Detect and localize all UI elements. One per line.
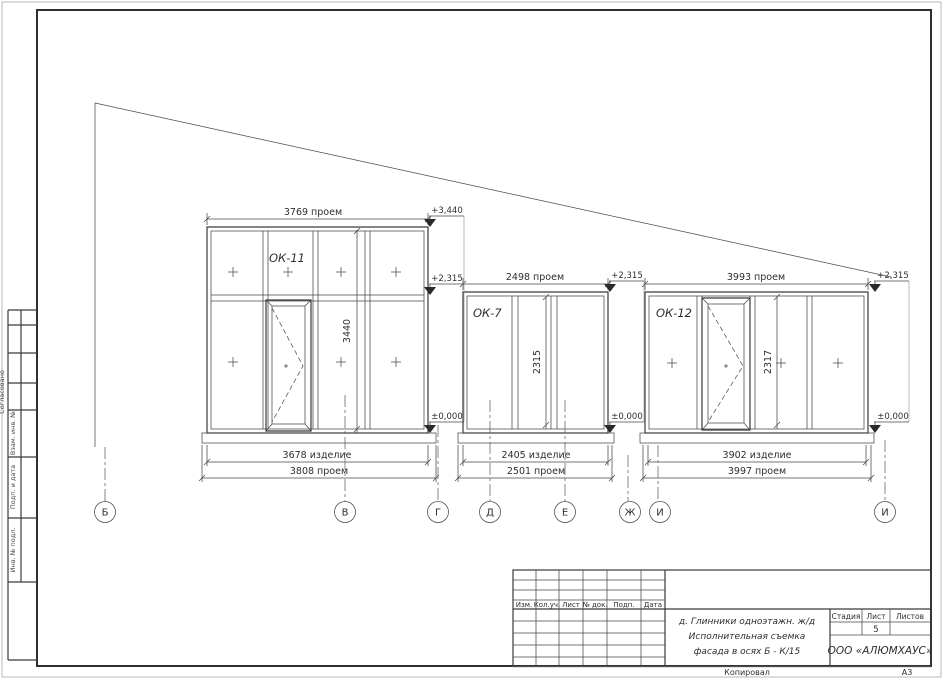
ok11-frame-inner [211,231,424,429]
sheets-header: Листов [896,612,924,621]
facade-drawing-canvas: Согласовано Взам. инв. № Подп. и дата Ин… [0,0,943,679]
ok11-frame-outer [207,227,428,433]
roof-slope-line [95,103,891,277]
elevation-arrow-icon [604,425,616,433]
project-line-1: д. Глинники одноэтажн. ж/д [678,617,815,627]
ok12-label: ОК-12 [656,306,692,320]
elevation-mark-lintel-2: +2,315 [604,271,644,292]
axis-letter: И [656,508,663,519]
title-block: Изм. Кол.уч. Лист № док. Подп. Дата д. Г… [513,570,932,666]
elevation-leader [874,422,909,425]
elevation-leader [609,422,644,425]
elevation-value: ±0,000 [611,412,642,422]
stage-header: Стадия [832,612,861,621]
axis-letter: Г [435,508,441,519]
rev-header-podp: Подп. [613,601,634,609]
ok12-bottom-opening-dim: 3997 проем [728,466,786,477]
elevation-leader [874,281,909,284]
ok7-sill [458,433,614,443]
axis-letter: Ж [625,508,636,519]
axis-letter: Д [486,508,494,519]
sheet-header: Лист [866,612,886,621]
ok7-product-dim: 2405 изделие [502,450,571,461]
axis-bubble-d: Д [480,502,501,523]
sheet-frame [37,10,931,666]
window-ok12: ОК-12 2317 3993 проем 3902 изделие 3997 … [640,272,874,482]
drawing-sheet: Согласовано Взам. инв. № Подп. и дата Ин… [0,0,943,679]
axis-letter: И [881,508,888,519]
ok11-bottom-opening-dim: 3808 проем [290,466,348,477]
elevation-leader [609,281,644,284]
ok11-sash-opening-lines [272,308,303,422]
project-line-3: фасада в осях Б - К/15 [694,647,801,657]
elevation-value: +3,440 [431,206,462,216]
ok12-sash-opening-lines [708,306,743,422]
ok12-sill [640,433,874,443]
company-name: ООО «АЛЮМХАУС» [828,645,933,657]
elevation-arrow-icon [424,425,436,433]
ok7-top-dim: 2498 проем [506,272,564,283]
ok11-glass-marks [228,267,401,368]
replace-inv-label: Взам. инв. № [9,411,17,455]
axis-bubble-e: Е [555,502,576,523]
copy-label: Копировал [724,668,770,677]
sign-date-label: Подп. и дата [9,465,17,509]
project-line-2: Исполнительная съемка [689,632,806,642]
rev-header-koluch: Кол.уч. [534,601,560,609]
rev-header-list: Лист [562,601,580,609]
ok12-height-dim-line [774,294,780,429]
paper-edge [2,2,941,677]
axis-bubble-v: В [335,502,356,523]
axis-bubble-i2: И [875,502,896,523]
elevation-value: ±0,000 [877,412,908,422]
ok11-sash-outer [266,300,311,431]
elevation-leader [429,284,464,287]
axis-lines [105,395,885,501]
orig-inv-label: Инв. № подл. [9,528,17,573]
axis-letter: В [342,508,349,519]
approved-label: Согласовано [0,370,6,414]
ok11-height-dim: 3440 [342,319,353,343]
elevation-leader [429,216,464,219]
ok12-top-dim: 3993 проем [727,272,785,283]
elevation-mark-roof: +3,440 [424,206,464,227]
ok7-label: ОК-7 [473,306,502,320]
elevation-arrow-icon [424,287,436,295]
elevation-mark-zero-3: ±0,000 [869,412,909,433]
elevation-arrow-icon [869,425,881,433]
axis-bubble-g: Г [428,502,449,523]
rev-header-data: Дата [644,601,662,609]
axis-bubble-i1: И [650,502,671,523]
elevation-leader [429,422,464,425]
ok11-label: ОК-11 [269,251,305,265]
axis-bubble-zh: Ж [620,502,641,523]
ok7-height-dim-line [543,294,549,429]
ok11-sash-inner [266,300,311,431]
elevation-value: +2,315 [611,271,642,281]
ok11-mullions [211,231,424,429]
elevation-value: +2,315 [877,271,908,281]
elevation-value: ±0,000 [431,412,462,422]
elevation-arrow-icon [869,284,881,292]
ok11-height-dim-line [354,228,360,433]
axis-letter: Б [102,508,109,519]
axis-letter: Е [562,508,568,519]
rev-header-ndok: № док. [582,601,607,609]
ok12-height-dim: 2317 [763,350,774,374]
window-ok11: ОК-11 3440 3769 проем 3678 изделие 3808 … [199,207,439,482]
left-margin-stamps: Согласовано Взам. инв. № Подп. и дата Ин… [0,310,37,660]
elevation-mark-lintel-3: +2,315 [869,271,909,292]
sheet-number: 5 [873,625,878,635]
ok7-height-dim: 2315 [532,350,543,374]
elevation-arrow-icon [604,284,616,292]
ok11-product-dim: 3678 изделие [283,450,352,461]
format-label: А3 [902,668,913,677]
elevation-arrow-icon [424,219,436,227]
window-ok7: ОК-7 2315 2498 проем 2405 изделие 2501 п… [455,272,615,482]
ok7-bottom-opening-dim: 2501 проем [507,466,565,477]
ok11-top-dim: 3769 проем [284,207,342,218]
elevation-mark-zero-2: ±0,000 [604,412,644,433]
axis-bubble-b: Б [95,502,116,523]
ok11-sill [202,433,436,443]
ok12-product-dim: 3902 изделие [723,450,792,461]
elevation-mark-zero-1: ±0,000 [424,412,464,433]
elevation-value: +2,315 [431,274,462,284]
elevation-mark-lintel-1: +2,315 [424,274,464,295]
rev-header-izm: Изм. [516,601,532,609]
